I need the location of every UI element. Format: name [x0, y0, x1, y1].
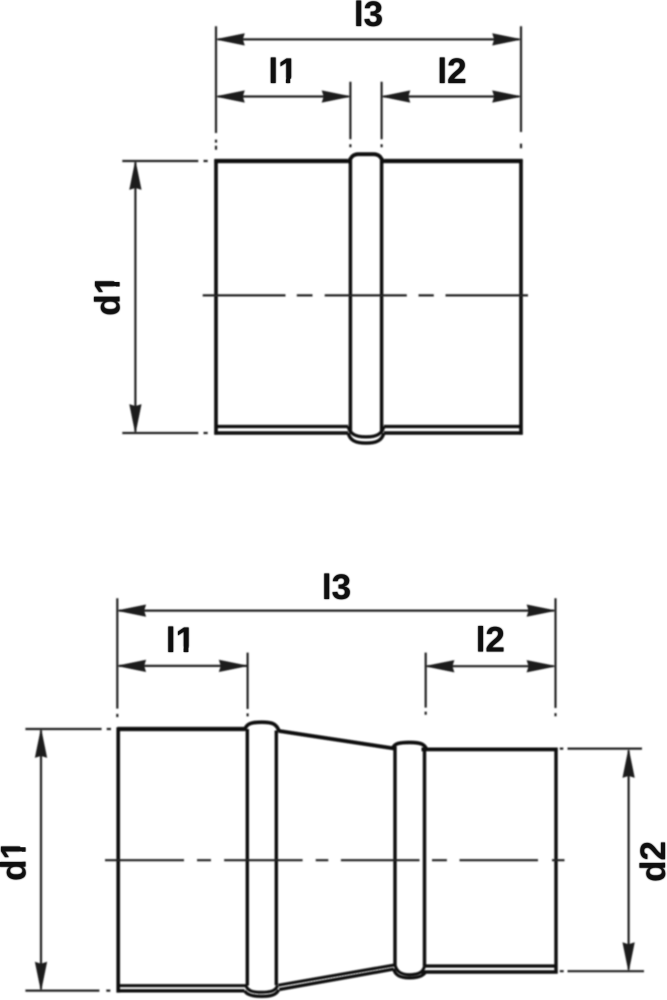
svg-text:l1: l1: [166, 621, 195, 660]
svg-text:d2: d2: [634, 841, 667, 882]
svg-text:l3: l3: [354, 0, 383, 34]
svg-text:l1: l1: [268, 52, 297, 91]
svg-text:d1: d1: [0, 840, 33, 881]
svg-text:d1: d1: [89, 275, 128, 316]
svg-text:l2: l2: [437, 52, 466, 91]
svg-text:l3: l3: [322, 568, 351, 607]
svg-text:l2: l2: [476, 621, 505, 660]
